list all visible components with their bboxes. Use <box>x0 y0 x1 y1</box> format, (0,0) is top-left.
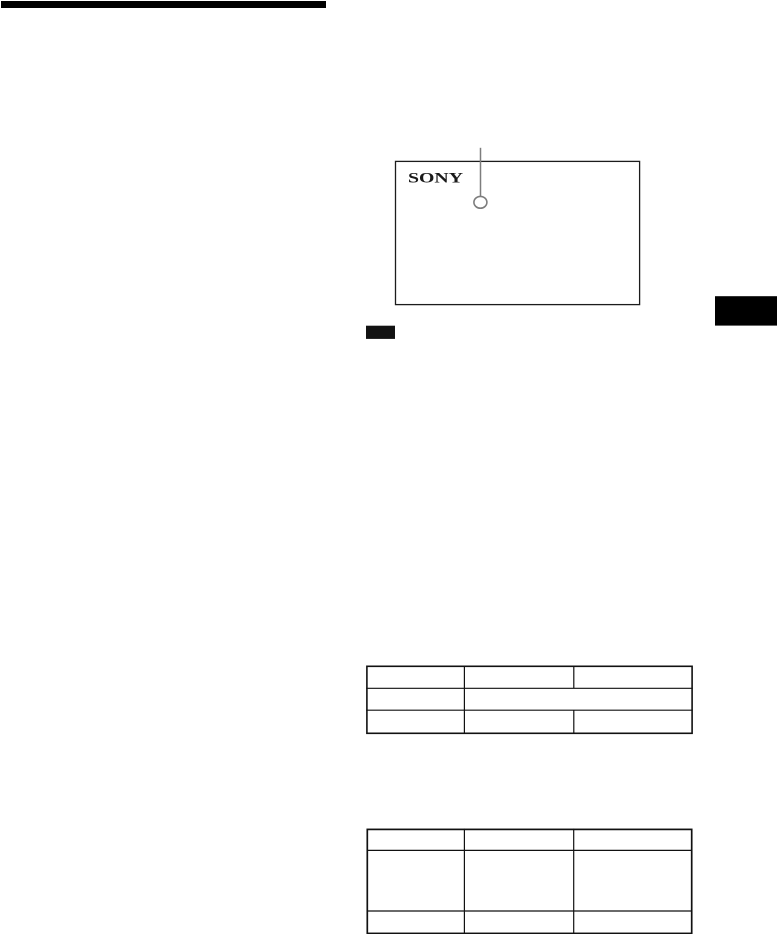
svg-text:SONY: SONY <box>408 170 463 186</box>
